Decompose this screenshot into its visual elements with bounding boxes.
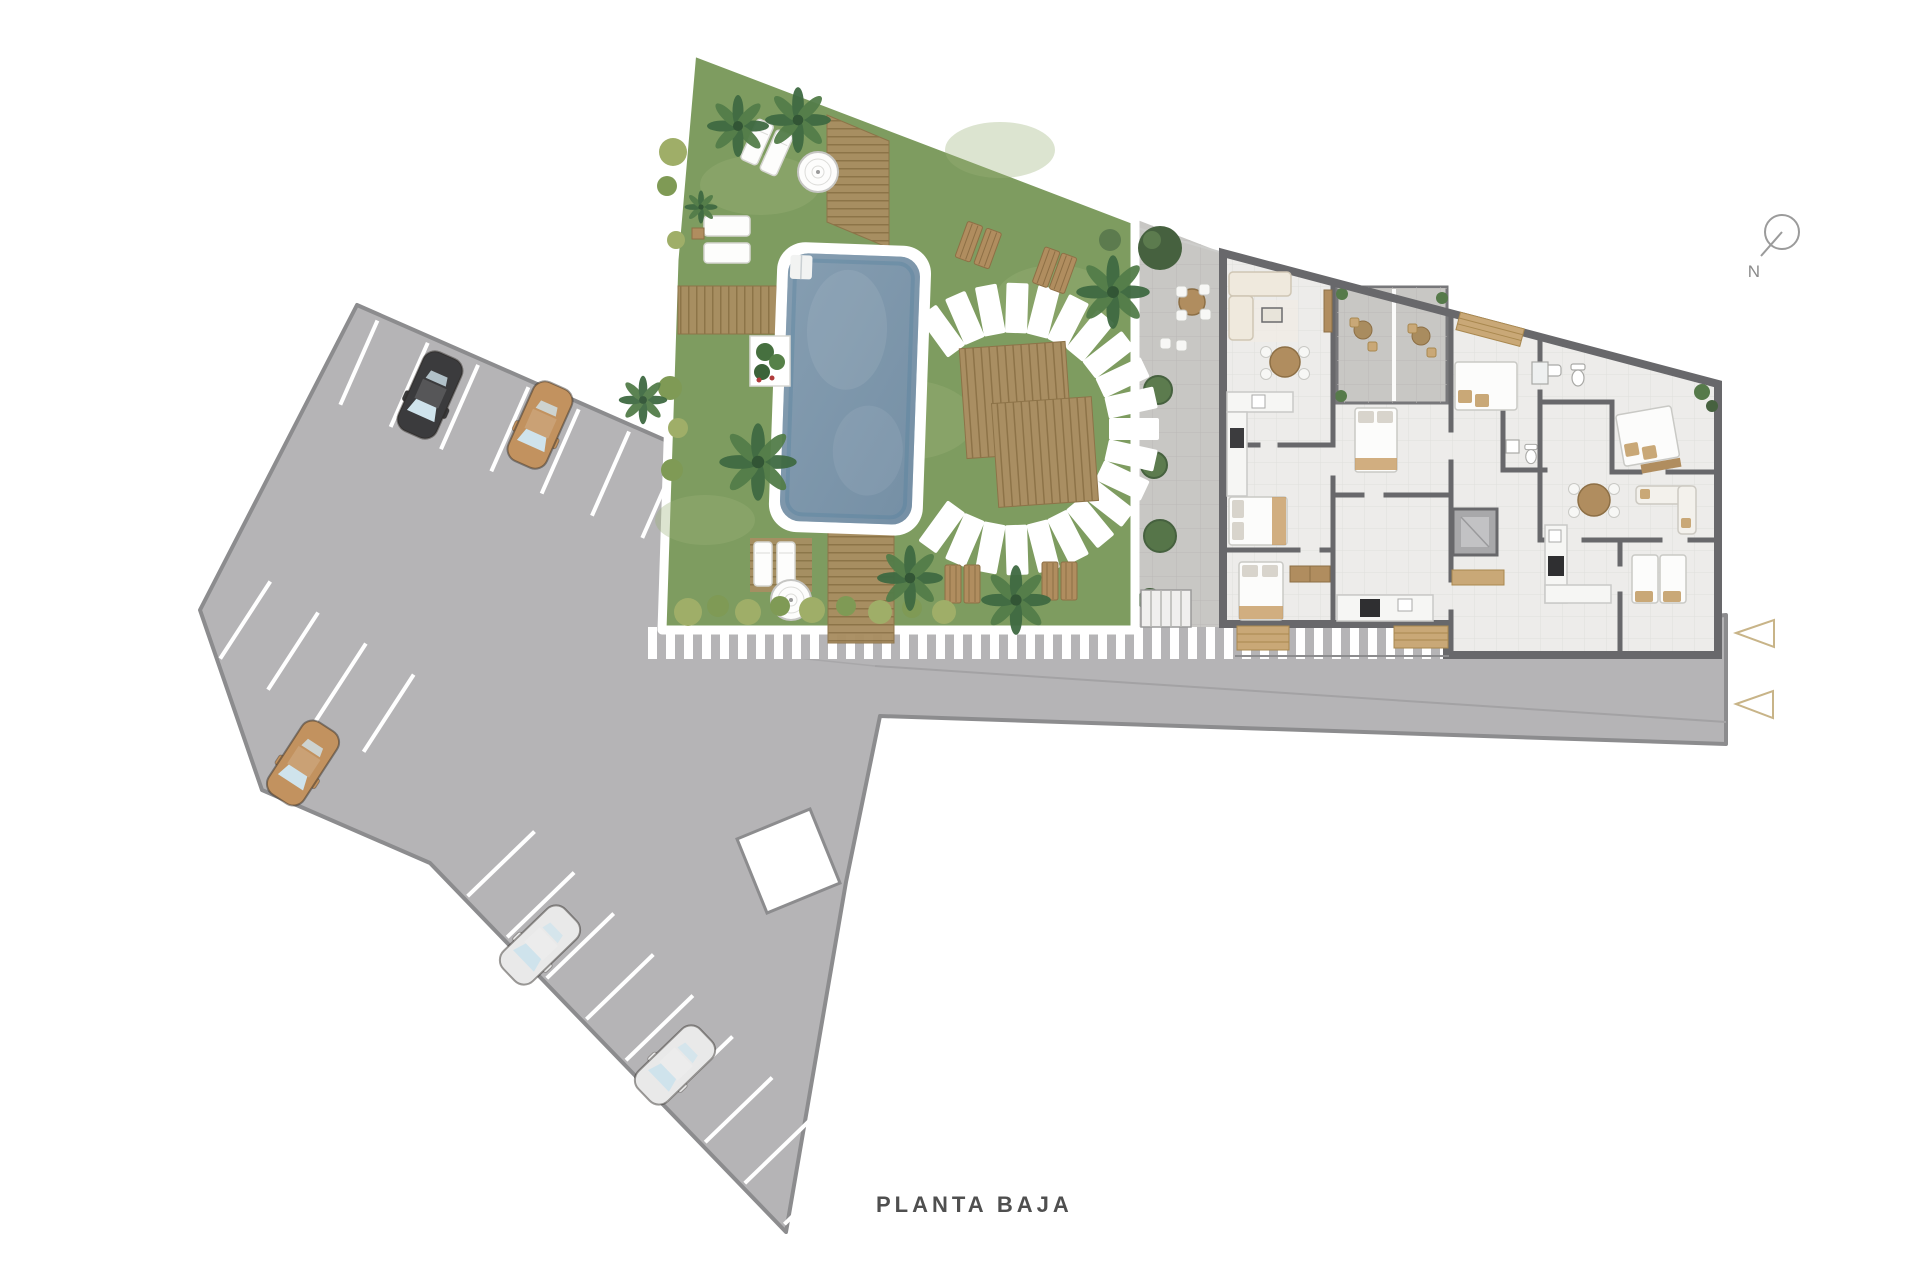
stairs-icon bbox=[1141, 590, 1191, 627]
entrance-arrow-icon-2 bbox=[1736, 691, 1773, 718]
deck-pool-south bbox=[828, 527, 894, 643]
indoor-plant bbox=[1694, 384, 1710, 400]
kitchen-mid bbox=[1337, 595, 1433, 621]
compass-icon: N bbox=[1748, 215, 1799, 281]
entrance-arrows bbox=[1736, 620, 1774, 718]
dining-table bbox=[1270, 347, 1300, 377]
plan-title: PLANTA BAJA bbox=[876, 1192, 1073, 1218]
site-plan-page: N PLANTA BAJA bbox=[0, 0, 1920, 1280]
garden-area bbox=[619, 51, 1182, 643]
swimming-pool bbox=[768, 241, 932, 536]
bedroom-right-mid bbox=[1616, 406, 1682, 477]
apartment-building bbox=[1223, 253, 1718, 656]
indoor-plant-2 bbox=[1706, 400, 1718, 412]
north-label: N bbox=[1748, 262, 1760, 281]
hall-bench bbox=[1452, 570, 1504, 585]
bedroom-mid bbox=[1355, 408, 1397, 472]
entrance-arrow-icon bbox=[1736, 620, 1774, 647]
parasol-top bbox=[798, 152, 838, 192]
elevator bbox=[1453, 509, 1497, 555]
bedroom-left-1 bbox=[1229, 497, 1287, 545]
floor-plan-svg: N bbox=[0, 0, 1920, 1280]
planter-box bbox=[750, 336, 790, 386]
